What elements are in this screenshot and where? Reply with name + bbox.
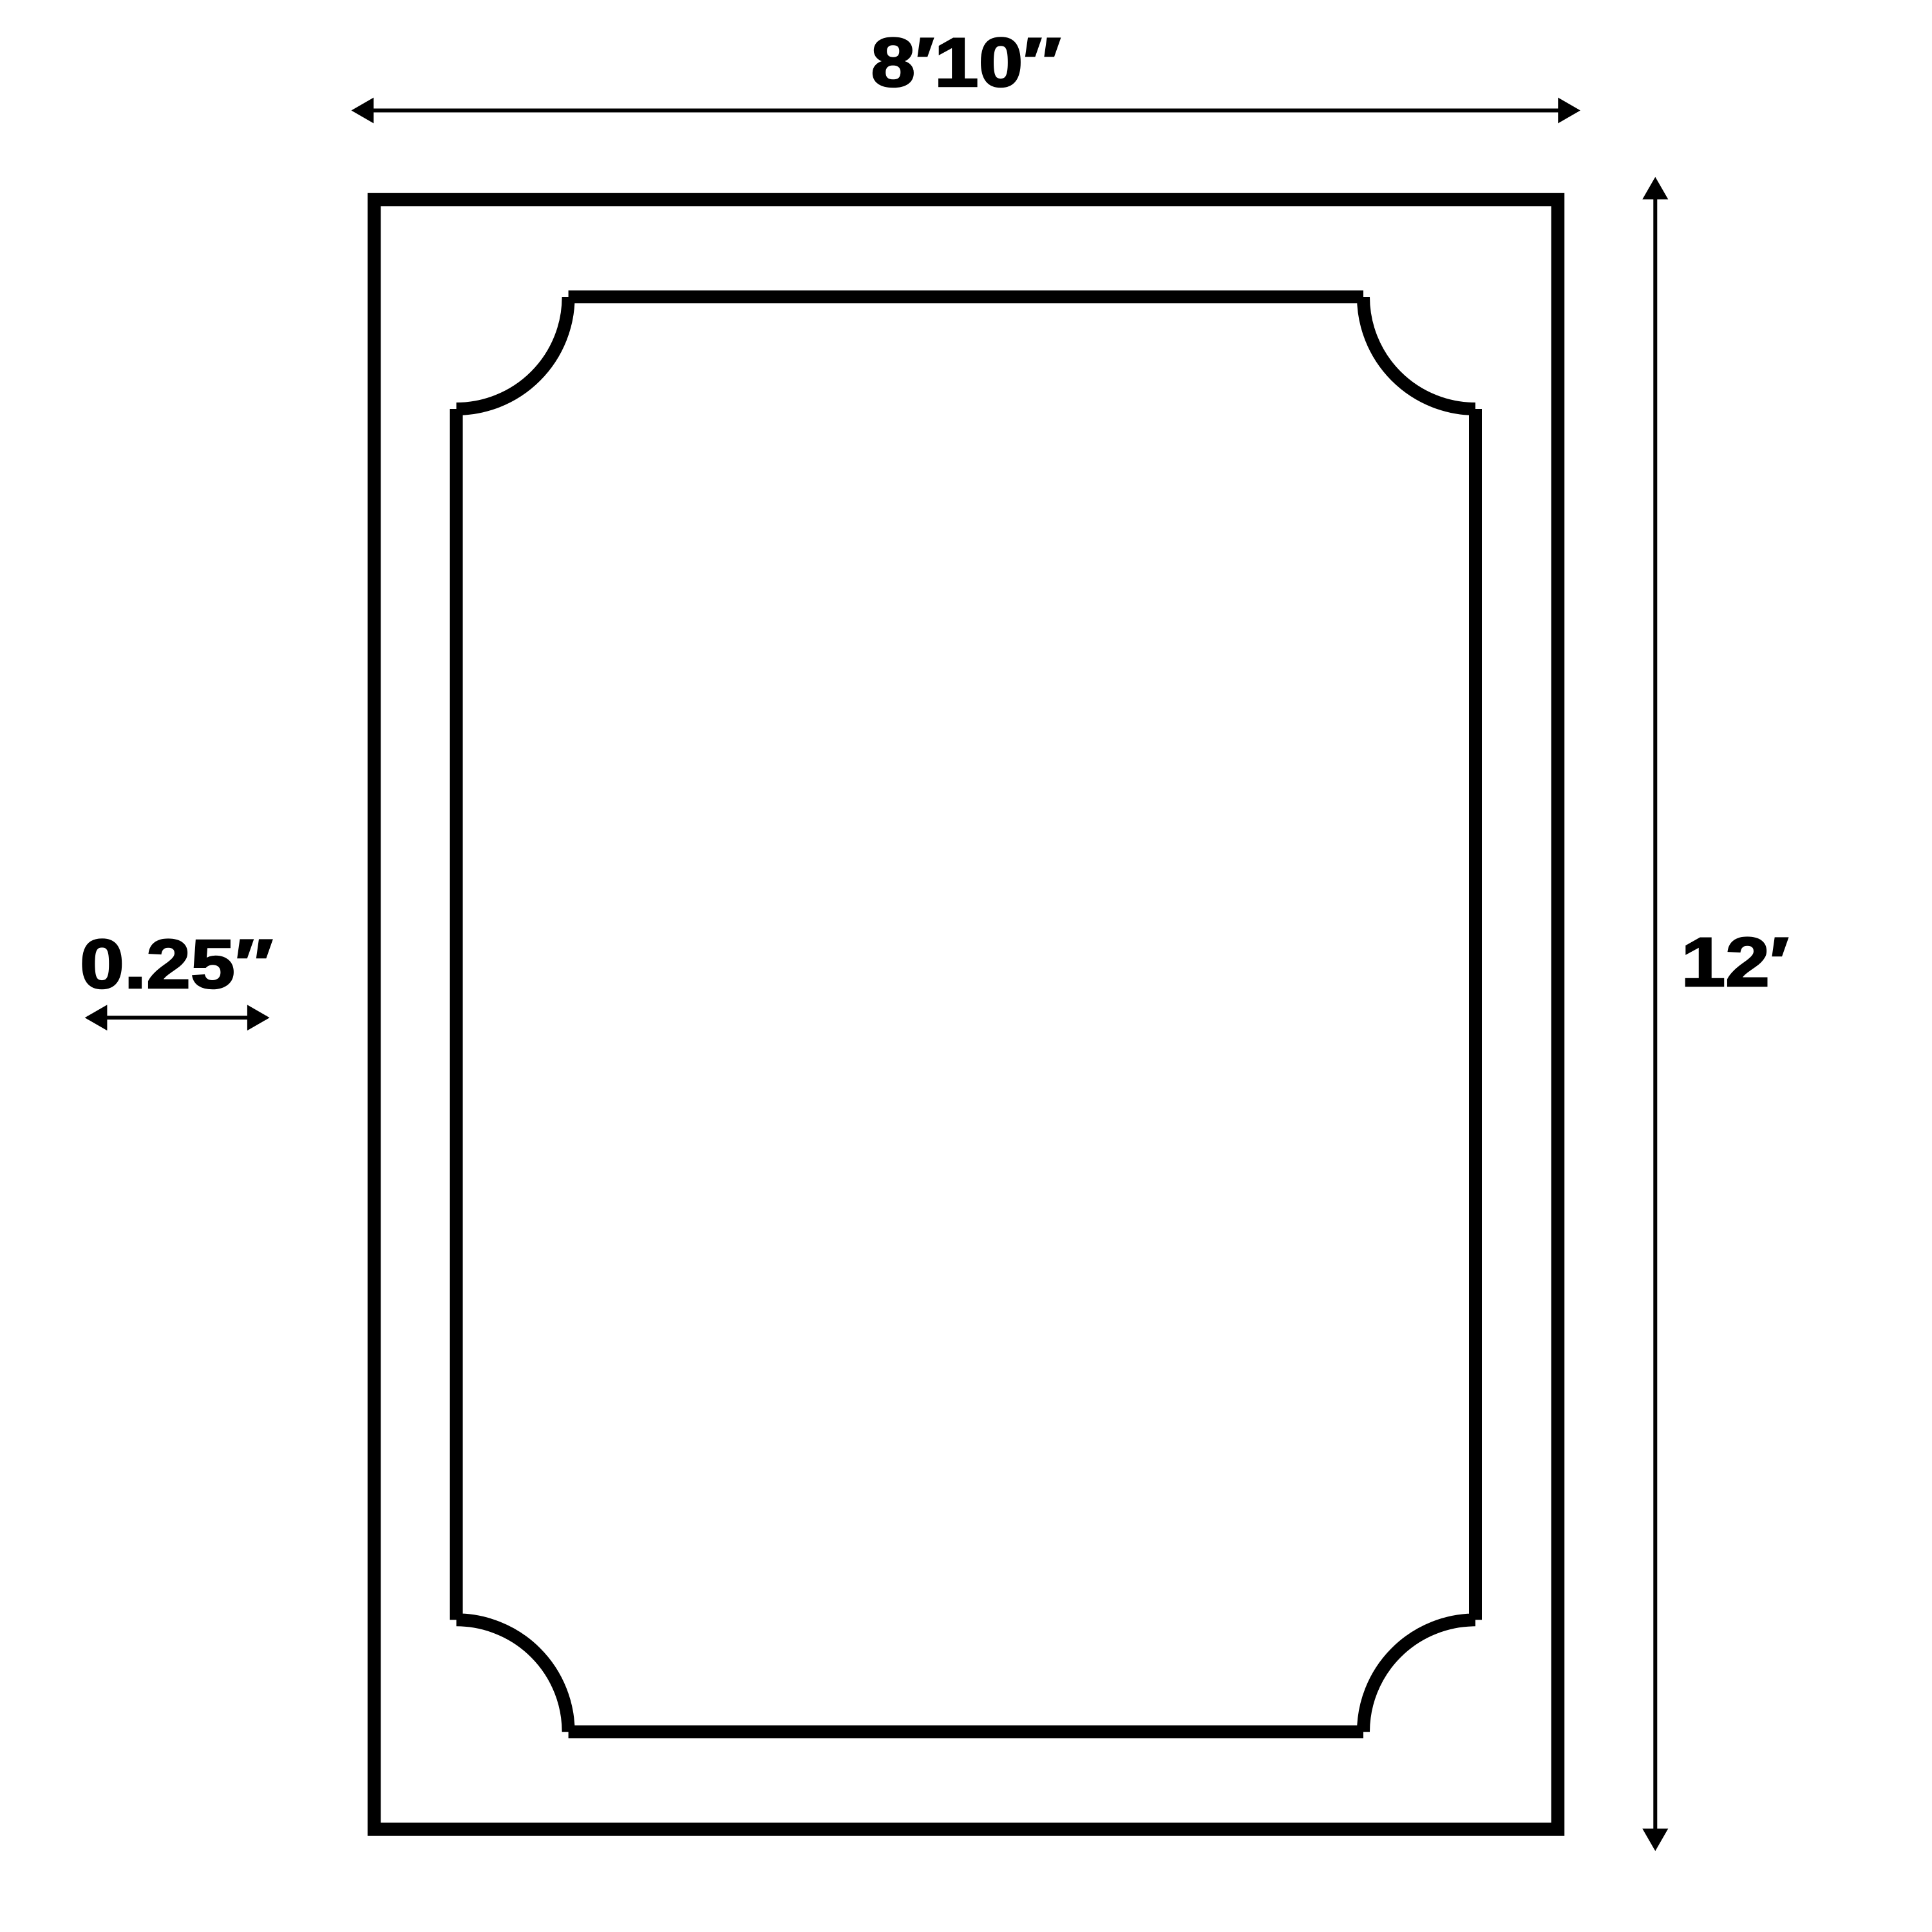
svg-text:0.25″: 0.25″	[80, 925, 273, 1003]
svg-text:12′: 12′	[1681, 923, 1788, 1001]
svg-text:8′10″: 8′10″	[871, 24, 1061, 102]
